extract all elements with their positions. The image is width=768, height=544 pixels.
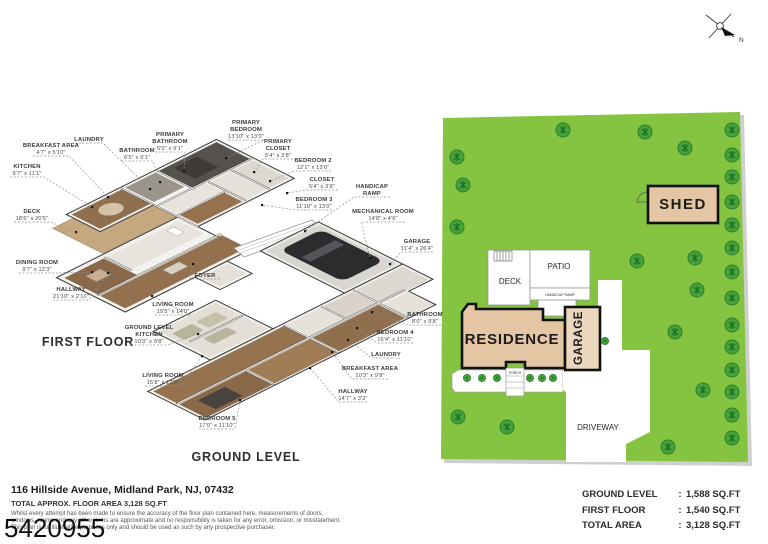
tree-icon bbox=[725, 218, 739, 232]
tree-icon bbox=[661, 440, 675, 454]
tree-icon bbox=[678, 141, 692, 155]
svg-text:PRIMARY: PRIMARY bbox=[232, 120, 260, 126]
room-label-bedroom-5: BEDROOM 5 17'0" x 11'10" bbox=[198, 416, 236, 429]
svg-text:BATHROOM: BATHROOM bbox=[152, 139, 187, 145]
compass: N bbox=[706, 14, 744, 44]
svg-text:LAUNDRY: LAUNDRY bbox=[74, 137, 104, 143]
room-label-living-room: LIVING ROOM 19'5" x 14'0" bbox=[152, 302, 193, 315]
svg-text:21'10" x 2'10": 21'10" x 2'10" bbox=[53, 294, 89, 300]
plan-id-number: 5420955 bbox=[4, 513, 105, 544]
svg-text:BEDROOM 3: BEDROOM 3 bbox=[295, 197, 333, 203]
svg-text:HANDICAP: HANDICAP bbox=[356, 184, 388, 190]
tree-icon bbox=[725, 408, 739, 422]
tree-icon bbox=[725, 318, 739, 332]
tree-icon bbox=[725, 340, 739, 354]
tree-icon bbox=[451, 410, 465, 424]
svg-text:KITCHEN: KITCHEN bbox=[135, 332, 162, 338]
room-label-gl-bathroom: BATHROOM 8'0" x 9'8" bbox=[407, 312, 442, 325]
tree-icon bbox=[725, 431, 739, 445]
tree-icon bbox=[696, 383, 710, 397]
svg-text:RAMP: RAMP bbox=[363, 191, 381, 197]
svg-text:BREAKFAST AREA: BREAKFAST AREA bbox=[23, 143, 80, 149]
svg-text:11'10" x 13'0": 11'10" x 13'0" bbox=[296, 204, 331, 210]
svg-text:KITCHEN: KITCHEN bbox=[13, 164, 40, 170]
garage-label: GARAGE bbox=[573, 311, 585, 365]
bush-icon bbox=[526, 374, 533, 381]
room-label-dining-room: DINING ROOM 9'7" x 12'3" bbox=[16, 260, 58, 273]
svg-text:MECHANICAL ROOM: MECHANICAL ROOM bbox=[352, 209, 414, 215]
svg-text:10'3" x 9'8": 10'3" x 9'8" bbox=[355, 373, 384, 379]
porch-label: PORCH bbox=[509, 371, 522, 375]
bush-icon bbox=[538, 374, 545, 381]
bush-icon bbox=[463, 374, 470, 381]
compass-north-needle bbox=[721, 27, 735, 36]
tree-icon bbox=[725, 385, 739, 399]
tree-icon bbox=[450, 220, 464, 234]
svg-text:BATHROOM: BATHROOM bbox=[407, 312, 442, 318]
svg-text:11'4" x 26'4": 11'4" x 26'4" bbox=[401, 246, 433, 252]
bush-icon bbox=[493, 374, 500, 381]
tree-icon bbox=[725, 148, 739, 162]
tree-icon bbox=[725, 170, 739, 184]
handicap-ramp-label: HANDICAP RAMP bbox=[545, 293, 575, 297]
summary-row-sep: : bbox=[674, 489, 686, 500]
room-label-handicap-ramp: HANDICAP RAMP bbox=[356, 184, 388, 197]
svg-text:18'6" x 20'5": 18'6" x 20'5" bbox=[16, 216, 49, 222]
tree-icon bbox=[725, 195, 739, 209]
svg-text:15'8" x 12'6": 15'8" x 12'6" bbox=[147, 380, 180, 386]
svg-text:DECK: DECK bbox=[23, 209, 41, 215]
room-label-closet: CLOSET 5'4" x 3'8" bbox=[309, 177, 335, 190]
site-plan: SHED RESIDENCE GARAGE PORCH DECK PATIO H… bbox=[441, 112, 752, 466]
svg-text:14'7" x 3'3": 14'7" x 3'3" bbox=[338, 396, 367, 402]
compass-north-label: N bbox=[739, 37, 744, 44]
summary-row-value: 1,588 SQ.FT bbox=[686, 489, 754, 500]
tree-icon bbox=[725, 123, 739, 137]
tree-icon bbox=[690, 283, 704, 297]
svg-text:HALLWAY: HALLWAY bbox=[338, 389, 367, 395]
svg-text:BEDROOM: BEDROOM bbox=[230, 127, 262, 133]
tree-icon bbox=[725, 363, 739, 377]
svg-text:6'5" x 9'1": 6'5" x 9'1" bbox=[124, 155, 150, 161]
svg-text:FOYER: FOYER bbox=[194, 273, 216, 279]
summary-row-value: 3,128 SQ.FT bbox=[686, 520, 754, 531]
svg-text:5'4" x 3'8": 5'4" x 3'8" bbox=[265, 153, 291, 159]
room-label-primary-closet: PRIMARY CLOSET 5'4" x 3'8" bbox=[264, 139, 292, 159]
svg-text:14'8" x 4'6": 14'8" x 4'6" bbox=[368, 216, 397, 222]
bush-icon bbox=[549, 374, 556, 381]
svg-text:17'0" x 11'10": 17'0" x 11'10" bbox=[199, 423, 234, 429]
room-label-bedroom-2: BEDROOM 2 12'1" x 13'0" bbox=[294, 158, 332, 171]
tree-icon bbox=[456, 178, 470, 192]
svg-text:LIVING ROOM: LIVING ROOM bbox=[142, 373, 183, 379]
plan-canvas: SHED RESIDENCE GARAGE PORCH DECK PATIO H… bbox=[0, 0, 768, 542]
bush-icon bbox=[601, 337, 608, 344]
tree-icon bbox=[688, 251, 702, 265]
tree-icon bbox=[638, 125, 652, 139]
room-label-bedroom-3: BEDROOM 3 11'10" x 13'0" bbox=[295, 197, 333, 210]
svg-text:DINING ROOM: DINING ROOM bbox=[16, 260, 58, 266]
room-label-hallway: HALLWAY 21'10" x 2'10" bbox=[53, 287, 89, 300]
room-label-foyer: FOYER bbox=[194, 273, 216, 279]
room-label-gl-living-room: LIVING ROOM 15'8" x 12'6" bbox=[142, 373, 183, 386]
svg-text:CLOSET: CLOSET bbox=[266, 146, 291, 152]
svg-text:GROUND LEVEL: GROUND LEVEL bbox=[125, 325, 174, 331]
floor-plan-page: { "first_floor": { "title": "FIRST FLOOR… bbox=[0, 0, 768, 542]
tree-icon bbox=[725, 241, 739, 255]
tree-icon bbox=[725, 291, 739, 305]
tree-icon bbox=[668, 325, 682, 339]
shed: SHED bbox=[637, 186, 718, 223]
tree-icon bbox=[725, 265, 739, 279]
svg-text:4'7" x 5'10": 4'7" x 5'10" bbox=[36, 150, 65, 156]
first-floor-title: FIRST FLOOR bbox=[42, 335, 134, 349]
tree-icon bbox=[630, 254, 644, 268]
property-address: 116 Hillside Avenue, Midland Park, NJ, 0… bbox=[11, 484, 391, 496]
svg-text:PRIMARY: PRIMARY bbox=[156, 132, 184, 138]
room-label-garage: GARAGE 11'4" x 26'4" bbox=[401, 239, 433, 252]
svg-text:LAUNDRY: LAUNDRY bbox=[371, 352, 401, 358]
svg-text:9'7" x 12'3": 9'7" x 12'3" bbox=[22, 267, 51, 273]
svg-text:BATHROOM: BATHROOM bbox=[119, 148, 154, 154]
svg-text:HALLWAY: HALLWAY bbox=[56, 287, 85, 293]
patio-label: PATIO bbox=[548, 262, 571, 271]
svg-text:CLOSET: CLOSET bbox=[310, 177, 335, 183]
summary-row-label: TOTAL AREA bbox=[582, 520, 674, 531]
room-label-kitchen: KITCHEN 9'7" x 11'1" bbox=[13, 164, 42, 177]
svg-text:PRIMARY: PRIMARY bbox=[264, 139, 292, 145]
ground-level-title: GROUND LEVEL bbox=[192, 450, 301, 464]
porch: PORCH bbox=[506, 368, 524, 396]
svg-text:10'3" x 9'8": 10'3" x 9'8" bbox=[134, 339, 163, 345]
room-label-deck: DECK 18'6" x 20'5" bbox=[16, 209, 49, 222]
tree-icon bbox=[556, 123, 570, 137]
tree-icon bbox=[450, 150, 464, 164]
room-label-mechanical-room: MECHANICAL ROOM 14'8" x 4'6" bbox=[352, 209, 414, 222]
summary-row-sep: : bbox=[674, 520, 686, 531]
room-label-primary-bathroom: PRIMARY BATHROOM 5'0" x 9'1" bbox=[152, 132, 187, 152]
svg-text:BEDROOM 5: BEDROOM 5 bbox=[198, 416, 236, 422]
shed-label: SHED bbox=[659, 196, 707, 213]
driveway-label: DRIVEWAY bbox=[577, 423, 619, 432]
room-label-bedroom-4: BEDROOM 4 16'4" x 11'10" bbox=[376, 330, 414, 343]
svg-text:LIVING ROOM: LIVING ROOM bbox=[152, 302, 193, 308]
room-label-gl-hallway: HALLWAY 14'7" x 3'3" bbox=[338, 389, 367, 402]
tree-icon bbox=[500, 420, 514, 434]
svg-text:9'7" x 11'1": 9'7" x 11'1" bbox=[13, 171, 42, 177]
svg-text:GARAGE: GARAGE bbox=[404, 239, 431, 245]
svg-text:19'5" x 14'0": 19'5" x 14'0" bbox=[157, 309, 190, 315]
svg-text:BEDROOM 2: BEDROOM 2 bbox=[294, 158, 332, 164]
total-floor-area: TOTAL APPROX. FLOOR AREA 3,128 SQ.FT bbox=[11, 499, 391, 508]
svg-text:12'1" x 13'0": 12'1" x 13'0" bbox=[297, 165, 330, 171]
bush-icon bbox=[478, 374, 485, 381]
svg-text:13'10" x 13'0": 13'10" x 13'0" bbox=[228, 134, 264, 140]
summary-row-label: GROUND LEVEL bbox=[582, 489, 674, 500]
deck-label: DECK bbox=[499, 277, 522, 286]
svg-text:16'4" x 11'10": 16'4" x 11'10" bbox=[377, 337, 412, 343]
svg-text:5'0" x 9'1": 5'0" x 9'1" bbox=[157, 146, 183, 152]
summary-row-value: 1,540 SQ.FT bbox=[686, 505, 754, 516]
summary-row-sep: : bbox=[674, 505, 686, 516]
room-label-breakfast-area: BREAKFAST AREA 4'7" x 5'10" bbox=[23, 143, 80, 156]
room-label-primary-bedroom: PRIMARY BEDROOM 13'10" x 13'0" bbox=[228, 120, 264, 140]
room-label-laundry: LAUNDRY bbox=[74, 137, 104, 143]
svg-text:8'0" x 9'8": 8'0" x 9'8" bbox=[412, 319, 438, 325]
svg-text:5'4" x 3'8": 5'4" x 3'8" bbox=[309, 184, 335, 190]
svg-text:BEDROOM 4: BEDROOM 4 bbox=[376, 330, 414, 336]
residence-label: RESIDENCE bbox=[465, 331, 560, 348]
summary-row-label: FIRST FLOOR bbox=[582, 505, 674, 516]
room-label-gl-laundry: LAUNDRY bbox=[371, 352, 401, 358]
room-label-bathroom: BATHROOM 6'5" x 9'1" bbox=[119, 148, 154, 161]
area-summary-table: GROUND LEVEL : 1,588 SQ.FT FIRST FLOOR :… bbox=[582, 489, 754, 531]
deck-stairs bbox=[494, 251, 512, 261]
svg-text:BREAKFAST AREA: BREAKFAST AREA bbox=[342, 366, 399, 372]
